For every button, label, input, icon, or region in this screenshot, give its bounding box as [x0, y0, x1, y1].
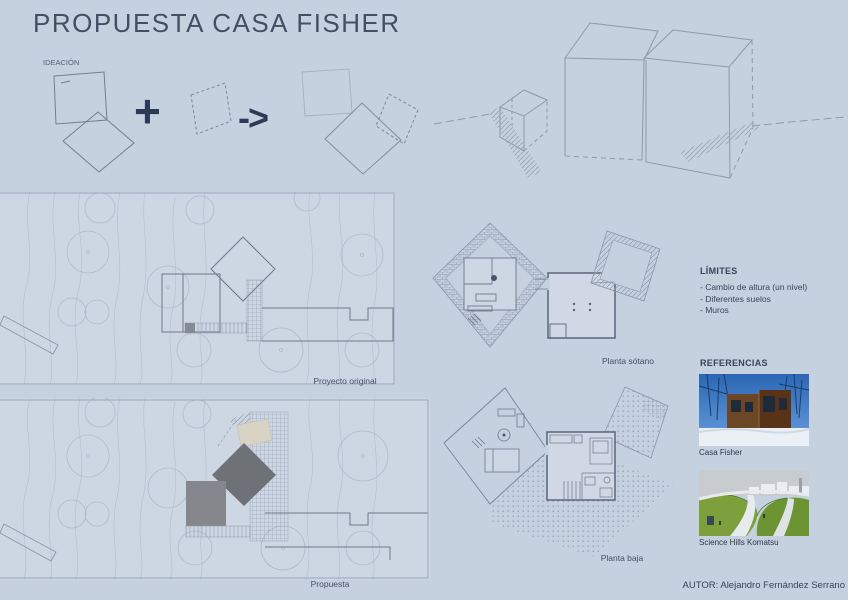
casa-fisher-caption: Casa Fisher	[699, 448, 742, 457]
page-title: PROPUESTA CASA FISHER	[33, 8, 401, 39]
ideation-sketch-added-volume	[180, 78, 238, 144]
ideation-sketch-result	[292, 60, 426, 180]
basement-floor-plan	[432, 222, 690, 362]
references-heading: REFERENCIAS	[700, 358, 768, 368]
author-credit: AUTOR: Alejandro Fernández Serrano	[600, 580, 845, 591]
limits-block: LÍMITES - Cambio de altura (un nivel) - …	[700, 266, 848, 317]
plus-icon: +	[134, 88, 161, 134]
axonometric-sketch	[430, 10, 848, 192]
ground-floor-plan	[432, 385, 690, 557]
limits-item: - Cambio de altura (un nivel)	[700, 282, 848, 294]
limits-item: - Muros	[700, 305, 848, 317]
ground-plan-caption: Planta baja	[572, 553, 672, 563]
science-hills-caption: Science Hills Komatsu	[699, 538, 779, 547]
arrow-icon: ->	[238, 100, 267, 136]
site-plan-original	[0, 192, 395, 385]
site-plan-proposal	[0, 398, 430, 580]
limits-heading: LÍMITES	[700, 266, 848, 276]
site-plan-proposal-caption: Propuesta	[280, 579, 380, 589]
basement-plan-caption: Planta sótano	[578, 356, 678, 366]
ideation-sketch-existing	[46, 66, 146, 176]
site-plan-original-caption: Proyecto original	[285, 376, 405, 386]
casa-fisher-photo	[699, 374, 809, 446]
science-hills-photo	[699, 470, 809, 536]
presentation-board: PROPUESTA CASA FISHER IDEACIÓN + ->	[0, 0, 848, 600]
limits-item: - Diferentes suelos	[700, 294, 848, 306]
